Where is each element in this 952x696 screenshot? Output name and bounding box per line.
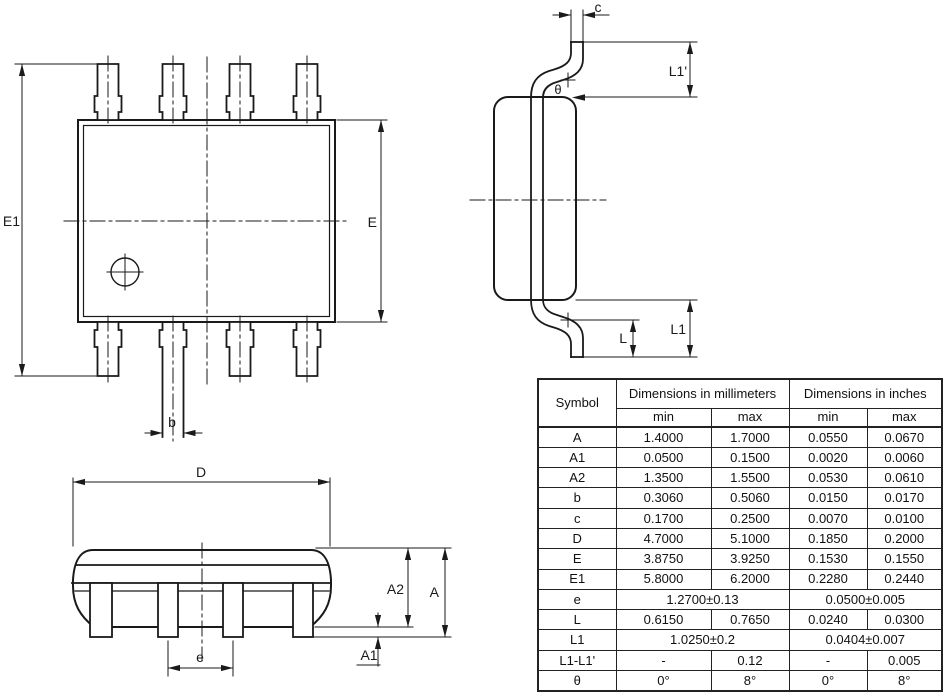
table-cell-mm-max: 0.2500 <box>711 508 789 528</box>
dim-D <box>73 478 330 546</box>
table-cell-mm-max: 1.7000 <box>711 427 789 447</box>
table-cell-inch: 0.0500±0.005 <box>789 589 942 609</box>
table-cell-inch-min: 0.0070 <box>789 508 867 528</box>
table-cell-inch-max: 0.005 <box>867 650 942 670</box>
table-cell-symbol: E1 <box>538 569 616 589</box>
table-row: e1.2700±0.130.0500±0.005 <box>538 589 942 609</box>
table-cell-inch-max: 0.0100 <box>867 508 942 528</box>
table-cell-mm-max: 3.9250 <box>711 549 789 569</box>
table-row: L1-L1'-0.12-0.005 <box>538 650 942 670</box>
table-cell-mm-max: 5.1000 <box>711 528 789 548</box>
col-header-inch-max: max <box>867 408 942 427</box>
table-cell-mm-min: 4.7000 <box>616 528 711 548</box>
table-cell-mm: 1.2700±0.13 <box>616 589 789 609</box>
table-cell-inch: 0.0404±0.007 <box>789 630 942 650</box>
table-cell-mm-min: 0.6150 <box>616 610 711 630</box>
table-row: E15.80006.20000.22800.2440 <box>538 569 942 589</box>
theta-arrow-icon <box>572 94 585 101</box>
table-cell-mm-max: 1.5500 <box>711 468 789 488</box>
table-cell-inch-max: 0.0300 <box>867 610 942 630</box>
table-cell-mm: 1.0250±0.2 <box>616 630 789 650</box>
dim-label-E1: E1 <box>3 213 20 229</box>
table-cell-inch-min: 0.0550 <box>789 427 867 447</box>
table-cell-mm-min: 0.1700 <box>616 508 711 528</box>
table-cell-symbol: A2 <box>538 468 616 488</box>
col-header-inch: Dimensions in inches <box>789 379 942 408</box>
dimensions-table: Symbol Dimensions in millimeters Dimensi… <box>537 378 943 692</box>
table-row: A10.05000.15000.00200.0060 <box>538 447 942 467</box>
table-cell-mm-max: 0.5060 <box>711 488 789 508</box>
dim-label-theta: θ <box>554 82 561 97</box>
lower-lead <box>531 300 583 357</box>
dim-label-E: E <box>368 214 377 230</box>
table-cell-symbol: θ <box>538 671 616 691</box>
front-view: D A2 A A1 e <box>72 464 451 676</box>
table-cell-inch-min: 0.1530 <box>789 549 867 569</box>
table-cell-mm-min: 0.0500 <box>616 447 711 467</box>
dim-label-L1: L1 <box>670 321 686 337</box>
table-cell-inch-max: 8° <box>867 671 942 691</box>
top-view: E1 E b <box>3 56 387 441</box>
dim-label-A: A <box>430 584 440 600</box>
table-cell-symbol: A <box>538 427 616 447</box>
table-row: E3.87503.92500.15300.1550 <box>538 549 942 569</box>
table-cell-inch-min: 0° <box>789 671 867 691</box>
table-cell-inch-max: 0.0670 <box>867 427 942 447</box>
table-cell-mm-max: 8° <box>711 671 789 691</box>
dim-label-D: D <box>196 464 206 480</box>
table-cell-symbol: L <box>538 610 616 630</box>
table-cell-symbol: c <box>538 508 616 528</box>
table-row: θ0°8°0°8° <box>538 671 942 691</box>
table-cell-inch-max: 0.1550 <box>867 549 942 569</box>
table-cell-symbol: A1 <box>538 447 616 467</box>
table-row: c0.17000.25000.00700.0100 <box>538 508 942 528</box>
dim-label-c: c <box>595 0 602 15</box>
col-header-mm: Dimensions in millimeters <box>616 379 789 408</box>
table-cell-inch-min: - <box>789 650 867 670</box>
col-header-inch-min: min <box>789 408 867 427</box>
table-cell-symbol: E <box>538 549 616 569</box>
table-cell-mm-min: 1.4000 <box>616 427 711 447</box>
dim-label-L1-prime: L1' <box>669 63 687 79</box>
dim-label-A2: A2 <box>387 581 404 597</box>
table-cell-symbol: L1-L1' <box>538 650 616 670</box>
package-outline-drawing: E1 E b <box>0 0 952 696</box>
dim-label-L: L <box>619 330 627 346</box>
table-cell-mm-max: 0.12 <box>711 650 789 670</box>
table-cell-inch-min: 0.0150 <box>789 488 867 508</box>
table-cell-inch-max: 0.0060 <box>867 447 942 467</box>
dim-label-e: e <box>196 649 204 665</box>
table-cell-mm-max: 6.2000 <box>711 569 789 589</box>
table-cell-mm-min: 0° <box>616 671 711 691</box>
table-cell-symbol: b <box>538 488 616 508</box>
table-cell-inch-max: 0.0170 <box>867 488 942 508</box>
dimensions-table-container: Symbol Dimensions in millimeters Dimensi… <box>537 378 941 690</box>
dim-L <box>572 320 639 357</box>
table-cell-inch-min: 0.0020 <box>789 447 867 467</box>
table-cell-mm-min: 0.3060 <box>616 488 711 508</box>
table-row: D4.70005.10000.18500.2000 <box>538 528 942 548</box>
table-row: L0.61500.76500.02400.0300 <box>538 610 942 630</box>
table-cell-mm-max: 0.7650 <box>711 610 789 630</box>
table-cell-symbol: L1 <box>538 630 616 650</box>
table-cell-mm-min: 1.3500 <box>616 468 711 488</box>
table-cell-symbol: e <box>538 589 616 609</box>
dim-label-A1: A1 <box>360 647 377 663</box>
table-cell-inch-min: 0.0240 <box>789 610 867 630</box>
table-cell-inch-max: 0.2440 <box>867 569 942 589</box>
table-row: A21.35001.55000.05300.0610 <box>538 468 942 488</box>
table-cell-inch-min: 0.0530 <box>789 468 867 488</box>
table-cell-inch-max: 0.0610 <box>867 468 942 488</box>
table-cell-mm-min: 3.8750 <box>616 549 711 569</box>
dim-label-b: b <box>168 414 176 430</box>
col-header-mm-min: min <box>616 408 711 427</box>
table-cell-mm-min: 5.8000 <box>616 569 711 589</box>
table-cell-inch-min: 0.1850 <box>789 528 867 548</box>
table-row: A1.40001.70000.05500.0670 <box>538 427 942 447</box>
table-cell-inch-max: 0.2000 <box>867 528 942 548</box>
col-header-symbol: Symbol <box>538 379 616 427</box>
table-cell-mm-max: 0.1500 <box>711 447 789 467</box>
table-row: L11.0250±0.20.0404±0.007 <box>538 630 942 650</box>
table-cell-mm-min: - <box>616 650 711 670</box>
table-cell-symbol: D <box>538 528 616 548</box>
package-body-side-view <box>494 97 576 300</box>
table-row: b0.30600.50600.01500.0170 <box>538 488 942 508</box>
table-cell-inch-min: 0.2280 <box>789 569 867 589</box>
col-header-mm-max: max <box>711 408 789 427</box>
side-view: c L1' θ L L1 <box>470 0 697 357</box>
